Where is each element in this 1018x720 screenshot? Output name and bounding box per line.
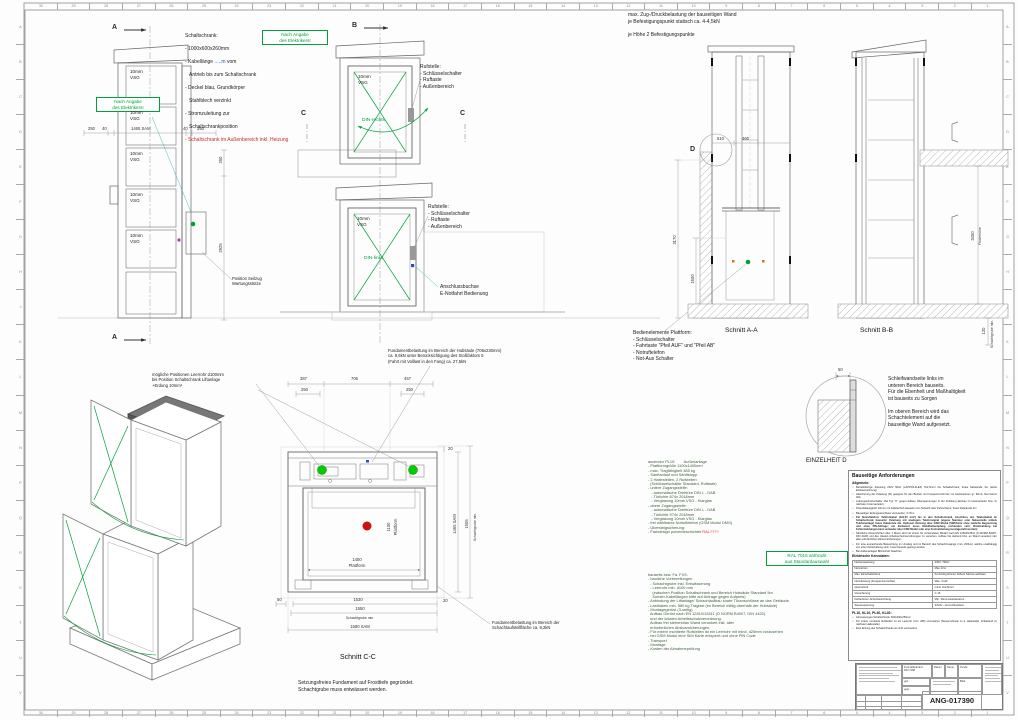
svg-text:20: 20 xyxy=(448,446,453,451)
fundament-schacht-note: Fundamentbelastung im Bereich der Schach… xyxy=(492,620,622,631)
frame-ruler-number: 18 xyxy=(416,710,449,717)
title-block-gez: gez. xyxy=(902,678,930,686)
svg-text:706: 706 xyxy=(351,376,359,381)
frame-ruler-number: 24 xyxy=(220,3,253,10)
kenndaten-row: Max. EinschaltströmeKurzzeitig können hö… xyxy=(853,572,996,578)
title-block-kunde: Kunde xyxy=(958,664,982,678)
title-block-datum-header: Datum xyxy=(932,664,945,678)
kenndaten-label-cell: Nennleistung (Frequenzumrichter) xyxy=(853,579,933,584)
kenndaten-label: Elektrische Kenndaten: xyxy=(852,554,997,558)
kenndaten-row: Nennleistung (Frequenzumrichter)Max. 3 k… xyxy=(853,578,996,584)
kenndaten-table: Netzeinspeisung230V / 50HzNennstromMax 1… xyxy=(852,560,997,609)
frame-ruler-number: 23 xyxy=(252,710,285,717)
section-bb xyxy=(838,40,1008,345)
section-label-aa: Schnitt A-A xyxy=(725,327,758,334)
frame-ruler-letter: F xyxy=(16,184,25,219)
frame-ruler-number: 11 xyxy=(644,3,677,10)
title-block-contact xyxy=(982,664,1002,695)
center-dot xyxy=(363,522,372,531)
svg-text:1530: 1530 xyxy=(353,597,363,602)
kenndaten-label-cell: Max. Einschaltströme xyxy=(853,573,933,578)
ral-badge: RAL 7016 anthrazit aus Standardauswahl xyxy=(766,551,848,566)
frame-ruler-number: 1 xyxy=(971,710,1003,717)
allgemein-item: Betriebsfertige Zuleitung 230V 50Hz (LAP… xyxy=(856,486,997,492)
frame-ruler-number: 7 xyxy=(775,710,808,717)
svg-text:1465 SAM: 1465 SAM xyxy=(452,514,457,534)
glass-label: 10mm VSG xyxy=(358,74,371,85)
frame-ruler-letter: N xyxy=(1003,430,1012,465)
frame-ruler-letter: A xyxy=(16,10,25,44)
frame-ruler-letter: D xyxy=(16,114,25,149)
frame-ruler-number: 14 xyxy=(546,3,579,10)
frame-ruler-letter: U xyxy=(1003,640,1012,675)
frame-ruler-letter: T xyxy=(1003,605,1012,640)
frame-ruler-number: 6 xyxy=(807,3,840,10)
frame-ruler-number: 4 xyxy=(873,710,906,717)
frame-ruler-number: 13 xyxy=(579,3,612,10)
frame-ruler-number: 28 xyxy=(89,710,122,717)
rufstelle-note-bottom: Rufstelle: - Schlüsselschalter - Ruftast… xyxy=(428,204,470,230)
panel-footer-list: Abmessungen Schaltschrank: 600x400x250mm… xyxy=(852,616,997,631)
glass-label: 10mm VSG xyxy=(130,192,143,203)
frame-ruler-number: 20 xyxy=(350,3,383,10)
frame-ruler-number: 13 xyxy=(579,710,612,717)
svg-text:1505: 1505 xyxy=(464,519,469,529)
allgemein-item: Bei Außenanlagen Blitzschutz beachten xyxy=(856,550,997,553)
frame-ruler-number: 2 xyxy=(938,3,971,10)
frame-ruler-number: 23 xyxy=(252,3,285,10)
allgemein-item: Für Notruftelefon: Telefonkabel (4x0,25 … xyxy=(856,516,997,531)
allgemein-item: Für eine ausreichende Beleuchtung im Ums… xyxy=(856,543,997,549)
kenndaten-value-cell: C 16 xyxy=(933,591,996,596)
svg-text:250: 250 xyxy=(301,387,309,392)
frame-ruler-number: 22 xyxy=(285,3,318,10)
seilzug-note: Position Seilzug Wartungsstütze xyxy=(232,276,262,287)
frame-ruler-number: 1 xyxy=(971,3,1003,10)
frame-ruler-letter: H xyxy=(16,254,25,289)
svg-text:1580 SAM: 1580 SAM xyxy=(350,624,370,629)
allgemein-list: Betriebsfertige Zuleitung 230V 50Hz (LAP… xyxy=(852,486,997,553)
svg-text:1400: 1400 xyxy=(352,557,362,562)
frame-ruler-number: 16 xyxy=(481,3,514,10)
svg-text:250: 250 xyxy=(88,126,96,131)
glass-label: 10mm VSG xyxy=(130,69,143,80)
frame-ruler-number: 5 xyxy=(840,710,873,717)
svg-text:Schachtgrube min.: Schachtgrube min. xyxy=(473,513,477,541)
allgemein-item: Sämtliche Absturzhöhen über 1 Meter sind… xyxy=(856,532,997,541)
frame-ruler-letter: D xyxy=(1003,114,1012,149)
leerrohr-position-dot xyxy=(318,466,327,475)
svg-text:457: 457 xyxy=(404,376,412,381)
fundament-hubsaeule-note: Fundamentbelastung im Bereich der Hubsäu… xyxy=(388,348,618,364)
platform-dot xyxy=(746,260,751,265)
kenndaten-value-cell: mind. 3x2,5mm² xyxy=(933,585,996,590)
footer-item: Für extern montierte Rufstellen ist ein … xyxy=(856,620,997,626)
svg-text:50: 50 xyxy=(277,597,282,602)
svg-text:Plattform: Plattform xyxy=(393,518,398,535)
title-block-company xyxy=(856,664,902,695)
frame-ruler-number: 4 xyxy=(873,3,906,10)
svg-text:250: 250 xyxy=(218,156,223,164)
frame-ruler-letter: B xyxy=(16,44,25,79)
frame-ruler-letter: R xyxy=(1003,535,1012,570)
frame-ruler-number: 2 xyxy=(938,710,971,717)
kenndaten-label-cell: Nennstrom xyxy=(853,567,933,572)
frame-ruler-letter: C xyxy=(16,79,25,114)
wand-belastung-note: max. Zug-/Druckbelastung der bauseitigen… xyxy=(628,12,848,38)
frame-ruler-letter: J xyxy=(16,289,25,324)
frame-ruler-letter: V xyxy=(1003,675,1012,710)
allgemein-item: Absicherung der Zuleitung (FI) geeignet … xyxy=(856,493,997,499)
kenndaten-row: VorsicherungC 16 xyxy=(853,590,996,596)
frame-ruler-number: 7 xyxy=(775,3,808,10)
kenndaten-value-cell: Kurzzeitig können höhere Ströme auftrete… xyxy=(933,573,996,578)
svg-text:Plattform: Plattform xyxy=(349,563,366,568)
panel-title: Bauseitige Anforderungen xyxy=(852,473,997,479)
frame-ruler-number: 25 xyxy=(187,3,220,10)
section-label-cc: Schnitt C-C xyxy=(340,654,376,661)
frame-ruler-number: 9 xyxy=(709,3,742,10)
svg-text:1550: 1550 xyxy=(355,606,365,611)
frame-ruler-letter: Q xyxy=(1003,500,1012,535)
frame-ruler-number: 22 xyxy=(285,710,318,717)
svg-text:50: 50 xyxy=(838,367,843,372)
frame-ruler-number: 27 xyxy=(122,3,155,10)
frame-ruler-number: 10 xyxy=(677,710,710,717)
frame-ruler-number: 29 xyxy=(57,3,90,10)
frame-ruler-number: 10 xyxy=(677,3,710,10)
frame-ruler-letter: Q xyxy=(16,500,25,535)
frame-ruler-letter: G xyxy=(1003,219,1012,254)
frame-ruler-top: 3029282726252423222120191817161514131211… xyxy=(25,3,1003,10)
frame-ruler-number: 26 xyxy=(155,710,188,717)
leader-dot xyxy=(177,238,180,241)
kabellaenge-value: .....m xyxy=(214,59,225,65)
kenndaten-row: NennstromMax 13 A xyxy=(853,566,996,572)
frame-ruler-letter: J xyxy=(1003,289,1012,324)
din-links-label: DIN-links xyxy=(364,256,383,261)
footer-item: Abmessungen Schaltschrank: 600x400x250mm xyxy=(856,616,997,619)
section-label-bb: Schnitt B-B xyxy=(860,327,893,334)
bauseits-line: - Kosten der Abnahmeprüfung xyxy=(648,647,858,651)
isometric-view xyxy=(63,396,240,680)
section-aa xyxy=(666,46,808,330)
svg-text:20: 20 xyxy=(443,598,448,603)
kenndaten-value-cell: 230V / 50Hz xyxy=(933,561,996,566)
frame-ruler-letter: K xyxy=(1003,324,1012,359)
frame-ruler-number: 25 xyxy=(187,710,220,717)
frame-ruler-number: 20 xyxy=(350,710,383,717)
allgemein-label: Allgemein: xyxy=(852,481,997,485)
kenndaten-row: Netzeinspeisung230V / 50Hz xyxy=(853,561,996,566)
frame-ruler-number: 30 xyxy=(25,710,57,717)
svg-text:3450: 3450 xyxy=(970,231,975,241)
kenndaten-value-cell: 24Vdc – kurzschlussfest xyxy=(933,603,996,608)
glass-label: 10mm VSG xyxy=(357,216,370,227)
svg-text:40: 40 xyxy=(102,126,107,131)
kenndaten-label-cell: Steuerspannung xyxy=(853,603,933,608)
frame-ruler-number: 18 xyxy=(416,3,449,10)
frame-ruler-letter: G xyxy=(16,219,25,254)
frame-ruler-letter: S xyxy=(1003,570,1012,605)
kenndaten-row: Steuerspannung24Vdc – kurzschlussfest xyxy=(853,602,996,608)
kenndaten-value-cell: Max 13 A xyxy=(933,567,996,572)
detail-d xyxy=(806,372,886,456)
title-block: Freimaßtoleranz DIN 7168 Datum Name Kund… xyxy=(855,663,1003,710)
kenndaten-label-cell: Querschnitt xyxy=(853,585,933,590)
frame-ruler-number: 12 xyxy=(612,710,645,717)
svg-text:1465 SAM: 1465 SAM xyxy=(131,126,151,131)
frame-ruler-letter: P xyxy=(1003,465,1012,500)
notfahrt-buchse xyxy=(411,264,414,267)
title-block-tolerance: Freimaßtoleranz DIN 7168 xyxy=(902,664,932,678)
frame-ruler-number: 6 xyxy=(807,710,840,717)
allgemein-item: Leitungsschutzschalter 16A Typ "C" gegen… xyxy=(856,500,997,506)
svg-text:1600: 1600 xyxy=(690,274,695,284)
kenndaten-value-cell: Max. 3 kW xyxy=(933,579,996,584)
svg-text:460: 460 xyxy=(742,136,750,141)
frame-ruler-number: 26 xyxy=(155,3,188,10)
frame-ruler-letter: K xyxy=(16,324,25,359)
drawing-number: ANG-017390 xyxy=(922,691,982,710)
section-marker-b: B xyxy=(352,22,357,29)
svg-text:250: 250 xyxy=(406,387,414,392)
frame-ruler-letter: M xyxy=(16,395,25,430)
kenndaten-row: Querschnittmind. 3x2,5mm² xyxy=(853,584,996,590)
frame-ruler-letter: A xyxy=(1003,10,1012,44)
svg-text:120: 120 xyxy=(981,327,986,335)
kenndaten-value-cell: Min. 30mA Auslösestrom xyxy=(933,597,996,602)
frame-ruler-letter: C xyxy=(1003,79,1012,114)
frame-ruler-number: 15 xyxy=(514,3,547,10)
frame-ruler-right: ABCDEFGHJKLMNPQRSTUV xyxy=(1003,10,1012,710)
svg-text:510: 510 xyxy=(717,136,725,141)
frame-ruler-letter: E xyxy=(16,149,25,184)
svg-text:2925: 2925 xyxy=(218,243,223,253)
footer-item: Eine Erdung des Schaltschranks ist nicht… xyxy=(856,627,997,630)
frame-ruler-number: 21 xyxy=(318,710,351,717)
frame-ruler-letter: L xyxy=(16,359,25,394)
elektriker-badge: Nach Angabe des Elektrikers! xyxy=(262,30,328,45)
svg-text:Förderhöhe: Förderhöhe xyxy=(978,227,982,245)
lower-door-view xyxy=(280,183,565,320)
frame-ruler-letter: H xyxy=(1003,254,1012,289)
frame-ruler-left: ABCDEFGHJKLMNPQRSTUV xyxy=(16,10,25,710)
detail-marker-d: D xyxy=(690,146,695,153)
frame-ruler-number: 30 xyxy=(25,3,57,10)
allgemein-item: Potentialausgleich 10mm² mit Kabelschuh … xyxy=(856,507,997,510)
bedienelemente-note: Bedienelemente Plattform: - Schlüsselsch… xyxy=(633,330,773,363)
kenndaten-row: Fehlerstrom-SchutzeinrichtungMin. 30mA A… xyxy=(853,596,996,602)
frame-ruler-number: 3 xyxy=(905,710,938,717)
frame-ruler-number: 19 xyxy=(383,710,416,717)
allgemein-item: Bauseitiger Erdungsanschluss vorzusehen,… xyxy=(856,512,997,515)
frame-ruler-number: 9 xyxy=(709,710,742,717)
frame-ruler-number: 21 xyxy=(318,3,351,10)
frame-ruler-number: 17 xyxy=(448,710,481,717)
kenndaten-label-cell: Netzeinspeisung xyxy=(853,561,933,566)
kenndaten-label-cell: Vorsicherung xyxy=(853,591,933,596)
frame-ruler-number: 8 xyxy=(742,710,775,717)
svg-text:3170: 3170 xyxy=(672,235,677,245)
einzelheit-note: Schleifwandseite links im unteren Bereic… xyxy=(888,376,1013,428)
rufstelle-note-top: Rufstelle: - Schlüsselschalter - Ruftast… xyxy=(420,64,462,90)
din-rechts-label: DIN-rechts xyxy=(362,118,385,123)
anforderungen-panel: Bauseitige Anforderungen Allgemein: Betr… xyxy=(848,470,1001,661)
frame-ruler-number: 27 xyxy=(122,710,155,717)
plan-view xyxy=(256,366,490,633)
section-marker-c-right: C xyxy=(460,110,465,117)
kenndaten-label-cell: Fehlerstrom-Schutzeinrichtung xyxy=(853,597,933,602)
frame-ruler-number: 19 xyxy=(383,3,416,10)
frame-ruler-number: 3 xyxy=(905,3,938,10)
frame-ruler-letter: T xyxy=(16,605,25,640)
frame-ruler-letter: U xyxy=(16,640,25,675)
frame-ruler-number: 14 xyxy=(546,710,579,717)
elektriker-badge: Nach Angabe des Elektrikers! xyxy=(96,97,160,112)
frame-ruler-letter: V xyxy=(16,675,25,710)
setzung-note: Setzungsfreies Fundament auf Frosttiefe … xyxy=(298,680,518,693)
title-block-revision-grid xyxy=(856,695,922,710)
frame-ruler-number: 16 xyxy=(481,710,514,717)
frame-ruler-number: 24 xyxy=(220,710,253,717)
frame-ruler-letter: B xyxy=(1003,44,1012,79)
frame-ruler-number: 15 xyxy=(514,710,547,717)
frame-ruler-letter: P xyxy=(16,465,25,500)
glass-label: 10mm VSG xyxy=(130,233,143,244)
frame-ruler-letter: S xyxy=(16,570,25,605)
frame-ruler-number: 12 xyxy=(612,3,645,10)
frame-ruler-number: 29 xyxy=(57,710,90,717)
drawing-sheet: 250 40 1465 SAM 40 250 250 2925 510 460 … xyxy=(0,0,1018,720)
detail-circle-d xyxy=(700,134,732,166)
frame-ruler-number: 28 xyxy=(89,3,122,10)
anschlussbuchse-note: Anschlussbuchse E-Notfahrt Bedienung xyxy=(440,284,488,297)
section-marker-a-top: A xyxy=(112,24,117,31)
frame-ruler-letter: N xyxy=(16,430,25,465)
panel-footer-title: PL10, KL10, PL40, KL40: xyxy=(852,611,997,615)
glass-label: 10mm VSG xyxy=(130,151,143,162)
spec-block: ascendor PL10: Außenanlage- Plattformgrö… xyxy=(648,460,848,534)
seilzug-dot xyxy=(191,222,196,227)
svg-text:Schachtgrube min.: Schachtgrube min. xyxy=(346,616,374,620)
frame-ruler-number: 11 xyxy=(644,710,677,717)
frame-ruler-letter: F xyxy=(1003,184,1012,219)
heizung-warning: - Schaltschrank im Außenbereich inkl. He… xyxy=(185,137,335,144)
section-marker-a-bottom: A xyxy=(112,334,117,341)
frame-ruler-number: 8 xyxy=(742,3,775,10)
svg-text:Schachtgrube min.: Schachtgrube min. xyxy=(990,320,994,348)
ral-placeholder: RAL???? xyxy=(702,529,718,534)
title-block-name-header: Name xyxy=(945,664,958,678)
svg-text:1100: 1100 xyxy=(386,522,391,532)
bauseits-block: bauseits bzw. Fa. FXS:- bauliche Vorbere… xyxy=(648,573,858,652)
frame-ruler-bottom: 3029282726252423222120191817161514131211… xyxy=(25,710,1003,717)
leerrohr-note: mögliche Positionen Leerrohr d100mm bis … xyxy=(152,372,282,388)
frame-ruler-number: 17 xyxy=(448,3,481,10)
frame-ruler-number: 5 xyxy=(840,3,873,10)
frame-ruler-letter: E xyxy=(1003,149,1012,184)
frame-ruler-letter: R xyxy=(16,535,25,570)
svg-text:387: 387 xyxy=(300,376,308,381)
glass-label: 10mm VSG xyxy=(130,110,143,121)
